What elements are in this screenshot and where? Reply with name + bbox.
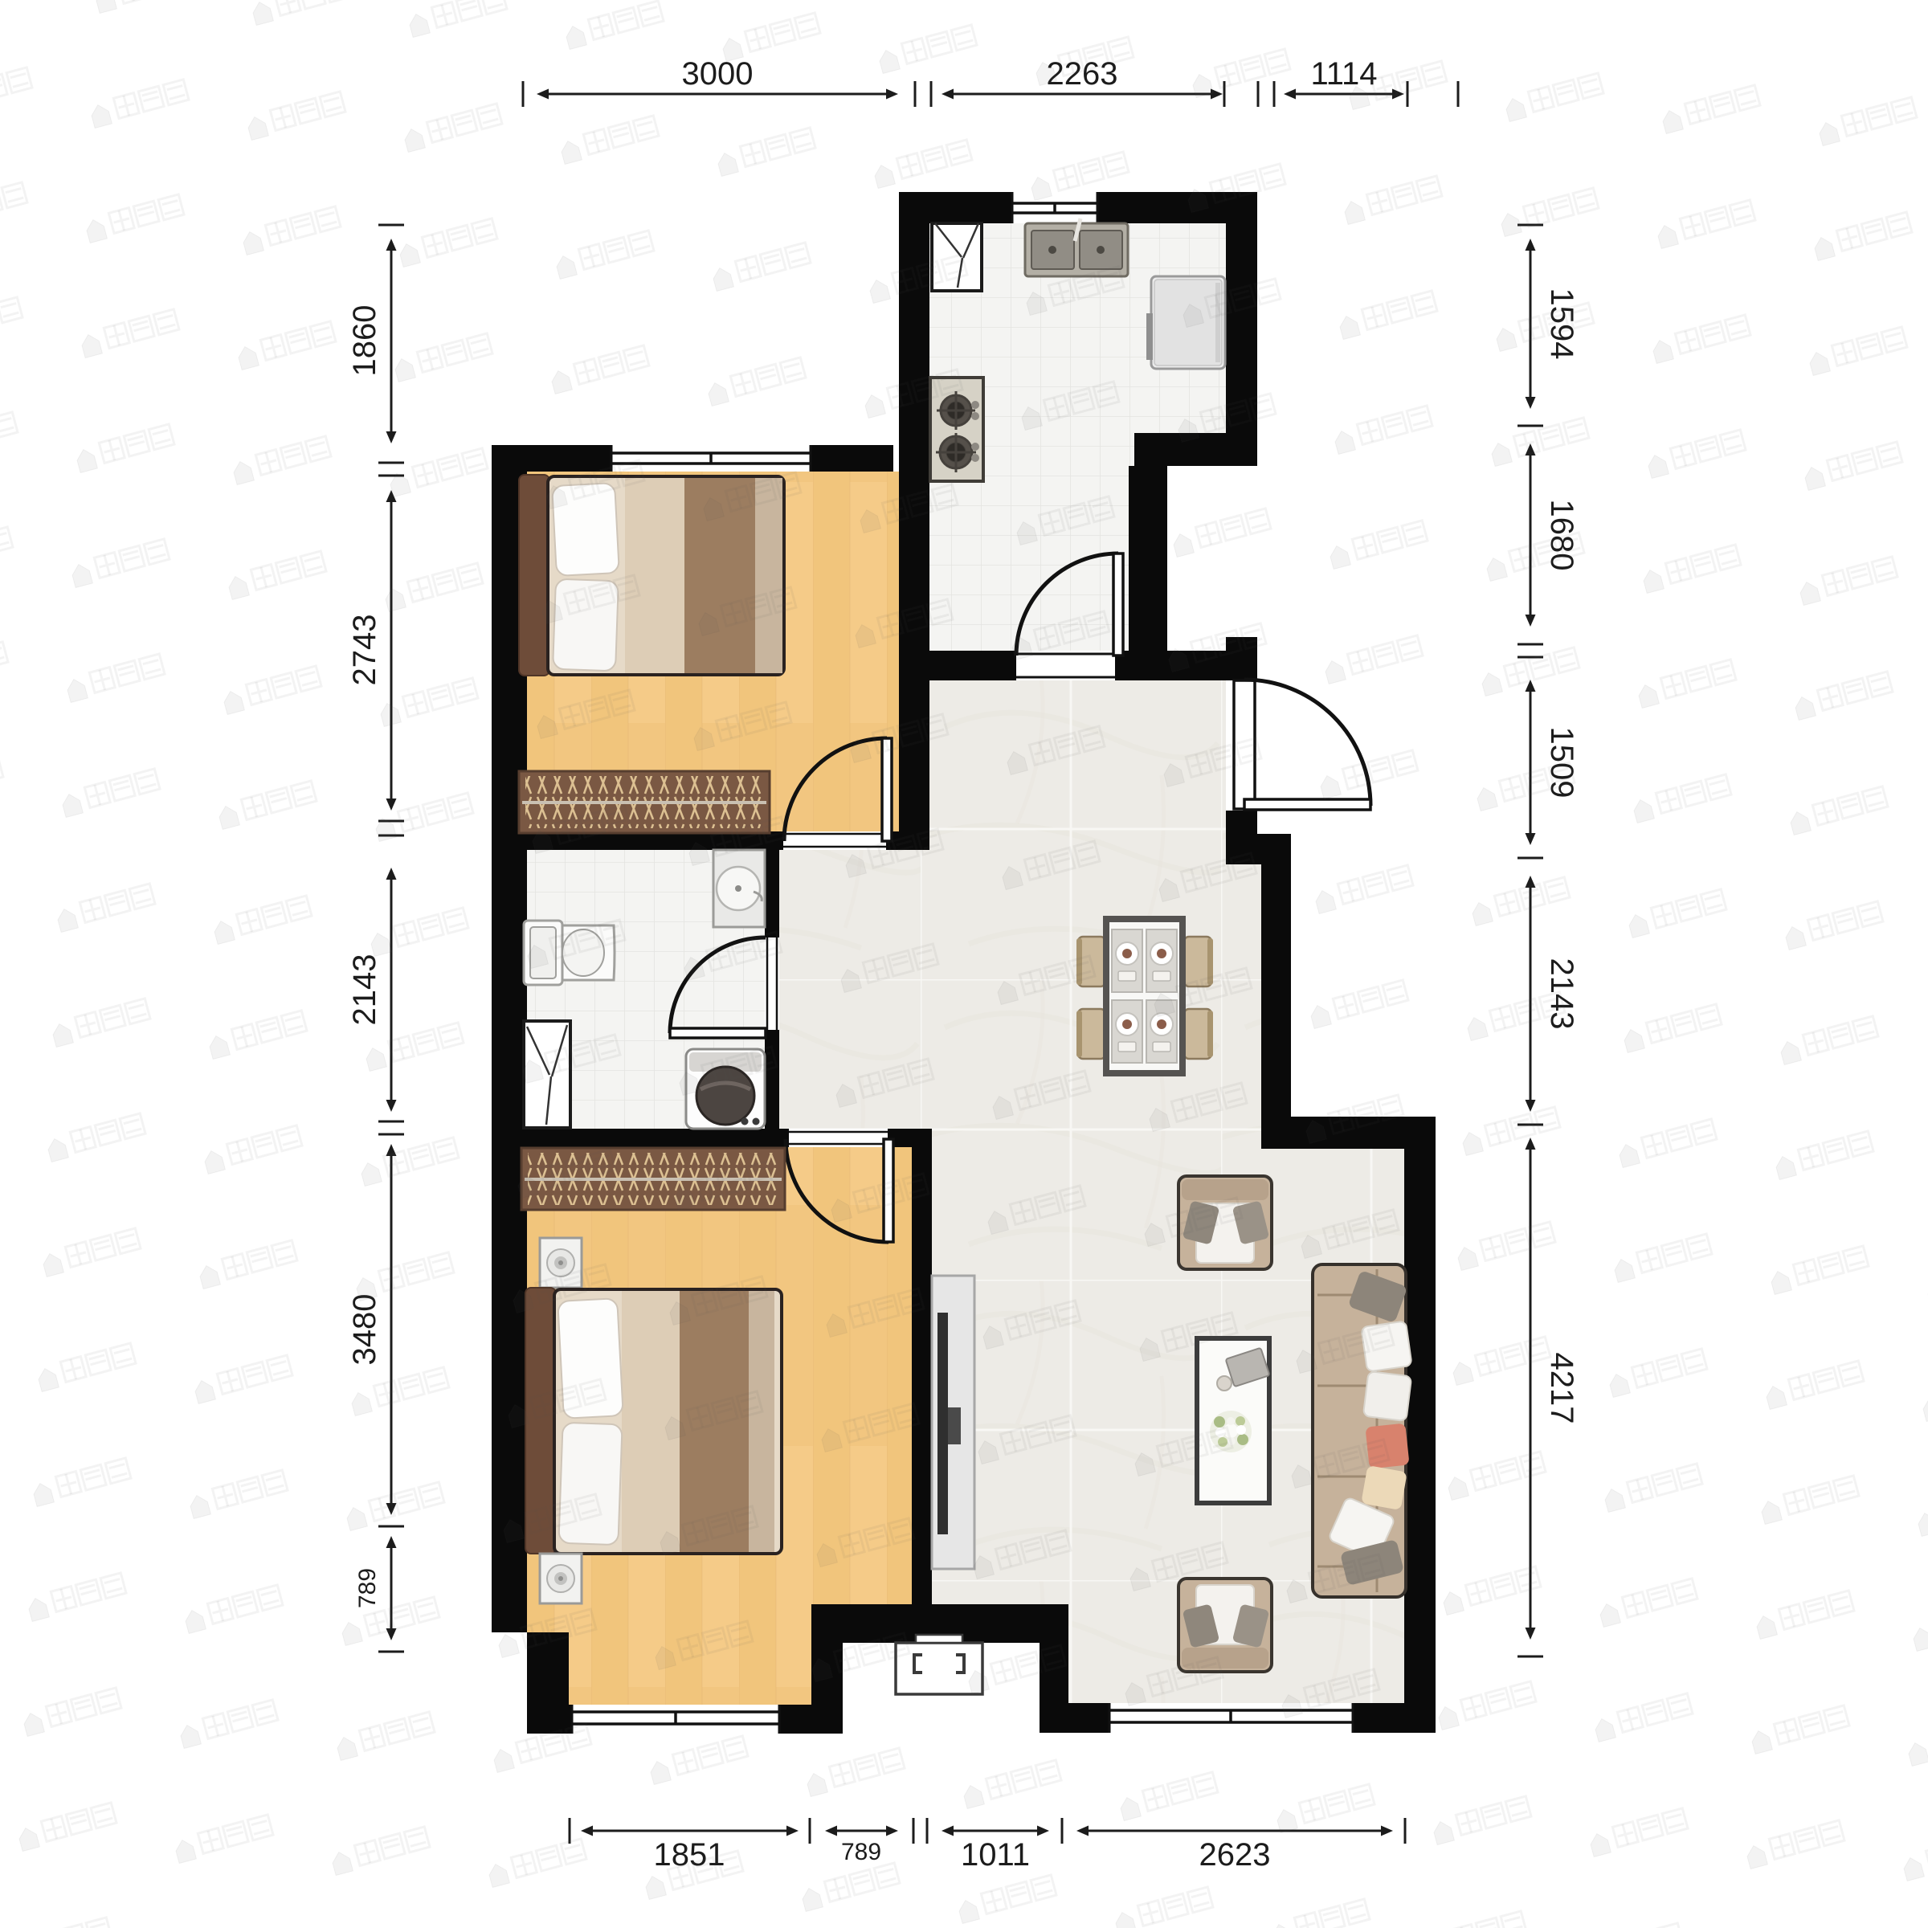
svg-text:3480: 3480 xyxy=(347,1294,382,1366)
svg-text:2743: 2743 xyxy=(347,615,382,686)
svg-text:789: 789 xyxy=(354,1568,381,1608)
svg-text:789: 789 xyxy=(841,1839,881,1865)
svg-text:1860: 1860 xyxy=(347,305,382,377)
svg-text:2143: 2143 xyxy=(347,954,382,1026)
svg-text:1114: 1114 xyxy=(1310,56,1377,92)
svg-text:4217: 4217 xyxy=(1544,1353,1579,1424)
svg-text:3000: 3000 xyxy=(682,56,754,92)
svg-text:1011: 1011 xyxy=(961,1837,1030,1873)
svg-text:2623: 2623 xyxy=(1199,1837,1271,1873)
